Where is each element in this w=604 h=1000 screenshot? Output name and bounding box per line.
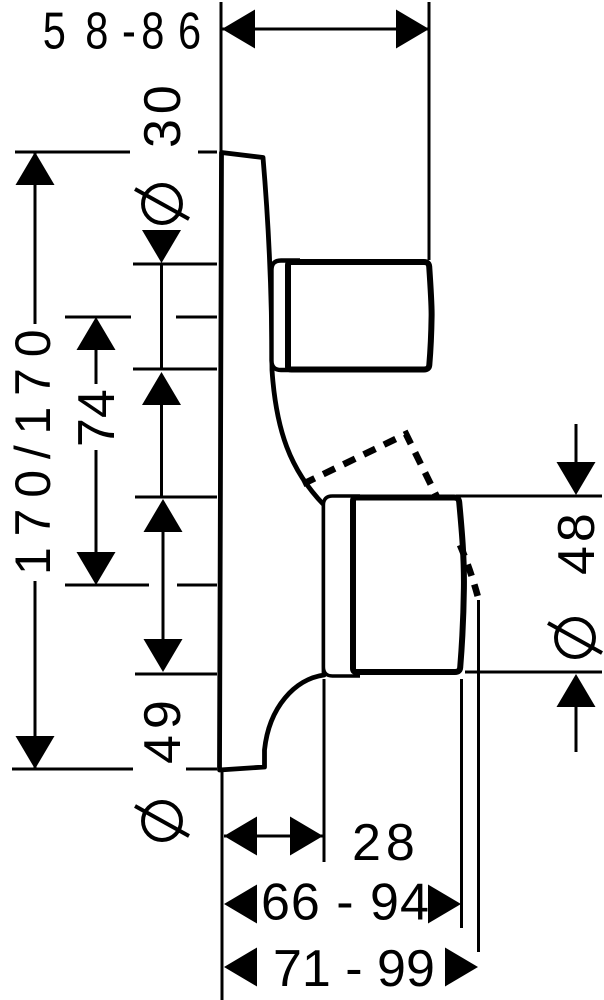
svg-text:30: 30 — [134, 80, 192, 148]
svg-text:66 - 94: 66 - 94 — [261, 874, 430, 932]
svg-text:170/170: 170/170 — [5, 319, 61, 575]
svg-text:49: 49 — [134, 694, 192, 764]
svg-text:71 - 99: 71 - 99 — [273, 940, 435, 998]
svg-text:48: 48 — [548, 509, 604, 575]
svg-text:74: 74 — [68, 389, 126, 447]
svg-text:28: 28 — [352, 814, 420, 872]
